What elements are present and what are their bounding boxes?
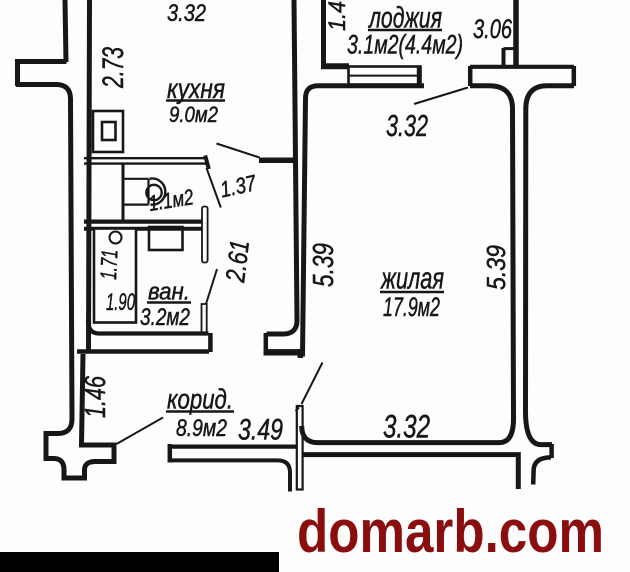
svg-text:5.39: 5.39 [481,245,511,290]
svg-text:3.32: 3.32 [167,0,206,27]
svg-text:5.39: 5.39 [308,243,340,287]
svg-text:9.0м2: 9.0м2 [169,102,218,127]
svg-text:8.9м2: 8.9м2 [176,415,227,442]
svg-text:кухня: кухня [167,73,225,104]
svg-text:жилая: жилая [380,261,444,296]
svg-text:2.61: 2.61 [220,238,255,284]
svg-text:17.9м2: 17.9м2 [383,292,440,322]
svg-text:3.2м2: 3.2м2 [140,304,190,331]
svg-text:3.1м2(4.4м2): 3.1м2(4.4м2) [347,30,463,60]
svg-text:domarb.com: domarb.com [297,498,604,565]
svg-text:1.1м2: 1.1м2 [147,184,195,216]
svg-text:3.06: 3.06 [473,14,513,44]
svg-text:1.4: 1.4 [324,1,351,31]
svg-text:3.49: 3.49 [238,414,283,447]
svg-text:2.73: 2.73 [97,47,130,89]
svg-text:1.90: 1.90 [106,289,135,316]
svg-text:корид.: корид. [167,384,233,415]
svg-text:ван.: ван. [148,279,190,306]
svg-text:1.46: 1.46 [80,375,112,418]
svg-text:3.32: 3.32 [383,409,430,445]
svg-text:1.37: 1.37 [218,170,260,202]
svg-text:3.32: 3.32 [386,108,428,143]
svg-text:1.71: 1.71 [95,249,123,280]
